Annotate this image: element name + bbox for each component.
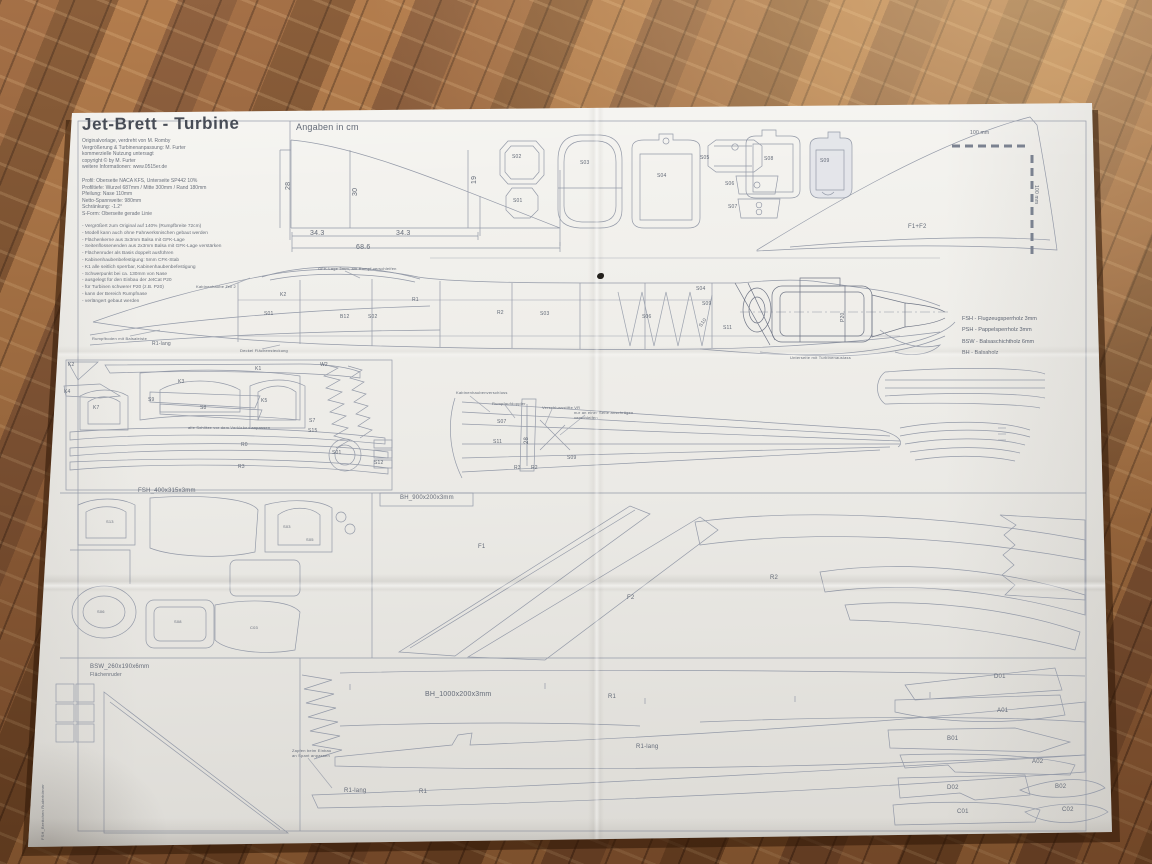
label-fus_k2: K2 xyxy=(280,292,287,298)
label-panel_bh900: BH_900x200x3mm xyxy=(400,495,454,501)
label-panel_bsw: BSW_260x190x6mm xyxy=(90,664,149,670)
label-wv_s07: S07 xyxy=(497,419,507,425)
label-lp_r3: R3 xyxy=(238,464,245,470)
label-fsh_s05: S05 xyxy=(306,537,314,542)
label-pr_d02: D02 xyxy=(947,785,959,791)
label-pr_a02: A02 xyxy=(1032,759,1043,765)
label-former_s08: S08 xyxy=(764,156,774,162)
info-line: weitere Informationen: www.0515er.de xyxy=(82,164,297,171)
label-pr_c02: C02 xyxy=(1062,807,1074,813)
label-lp_s12: S12 xyxy=(374,460,384,466)
info-line: Originalvorlage, verdreht von M. Romby xyxy=(82,138,297,145)
label-bh10_r1b: R1 xyxy=(419,789,427,795)
label-bh9_f2: F2 xyxy=(627,595,634,601)
label-former_s07: S07 xyxy=(728,204,738,210)
label-wv_s09: S09 xyxy=(567,455,577,461)
legend-line: PSH - Pappelsperrholz 3mm xyxy=(962,325,1037,336)
label-pr_d01: D01 xyxy=(994,674,1006,680)
label-bh10_note2: an Spant anpassen xyxy=(292,753,330,758)
label-fus_p20: P20 xyxy=(840,313,846,323)
label-former_s04: S04 xyxy=(657,173,667,179)
corner-shadow xyxy=(20,740,170,850)
label-lp_s9: S9 xyxy=(148,397,155,403)
label-pr_b02: B02 xyxy=(1055,784,1066,790)
horizontal-fold-crease-lower xyxy=(28,574,1112,592)
label-bh10_r1lang2: R1-lang xyxy=(344,788,366,794)
label-fus_s03: S03 xyxy=(540,311,550,317)
label-ann_gfk: GFK-Lage 3mm, am Rumpf verschleifen xyxy=(318,266,397,271)
note-line: - für Turbinen schwerer P20 (z.B. P20) xyxy=(82,285,292,292)
label-dim_28: 28 xyxy=(285,182,292,190)
label-panel_bh1000: BH_1000x200x3mm xyxy=(425,691,491,698)
label-scale_top: 100 mm xyxy=(970,130,989,136)
info-line: Profil: Oberseite NACA KFS, Unterseite S… xyxy=(82,178,297,185)
label-lp_r0: R0 xyxy=(241,442,248,448)
label-fsh_s03: S03 xyxy=(283,524,291,529)
label-wv_r2: R2 xyxy=(531,465,538,471)
info-line: copyright © by M. Furter xyxy=(82,158,297,165)
label-former_s05: S05 xyxy=(700,155,710,161)
label-dim_686: 68.6 xyxy=(356,244,370,251)
horizontal-fold-crease-upper xyxy=(28,346,1112,358)
info-line: Profiltiefe: Wurzel 687mm / Mitte 300mm … xyxy=(82,185,297,192)
label-fus_s11: S11 xyxy=(723,325,732,331)
note-line: - K1 alle seitlich sperrbar, Kabinenhaub… xyxy=(82,265,292,272)
label-angaben: Angaben in cm xyxy=(296,122,359,132)
label-fsh_c03: C03 xyxy=(250,625,258,630)
label-lp_k2: K2 xyxy=(68,362,75,368)
info-line: S-Form: Oberseite gerade Linie xyxy=(82,211,297,218)
title-block: Jet-Brett - Turbine Originalvorlage, ver… xyxy=(82,114,297,218)
label-lp_s8: S8 xyxy=(200,405,207,411)
label-lp_k1: K1 xyxy=(255,366,262,372)
info-line: Netto-Spannweite: 980mm xyxy=(82,198,297,205)
label-lp_k4: K4 xyxy=(64,389,71,395)
info-line: kommerzielle Nutzung untersagt xyxy=(82,151,297,158)
label-bh10_r1lang: R1-lang xyxy=(636,744,658,750)
label-former_s02: S02 xyxy=(512,154,522,160)
label-wv_r3: R3 xyxy=(514,465,521,471)
label-former_s01: S01 xyxy=(513,198,523,204)
plan-title: Jet-Brett - Turbine xyxy=(82,113,297,135)
note-line: - kann der Bereich Rumpfnase xyxy=(82,292,292,299)
label-lp_s01: S01 xyxy=(332,450,342,456)
title-info-lines: Originalvorlage, verdreht von M. RombyVe… xyxy=(82,138,297,171)
note-line: - Flächenruder als Basis doppelt ausführ… xyxy=(82,251,292,258)
label-scale_right: 100 mm xyxy=(1033,185,1039,204)
label-fus_s02: S02 xyxy=(368,314,378,320)
label-fus_r1: R1 xyxy=(412,297,419,303)
label-lp_k7: K7 xyxy=(93,405,100,411)
note-line: - Kabinenhaubenbefestigung: 5mm CFK-Stab xyxy=(82,258,292,265)
label-bh9_f1: F1 xyxy=(478,544,485,550)
label-lp_k3: K3 xyxy=(178,379,185,385)
build-notes: - Vergrößert zum Original auf 140% (Rump… xyxy=(82,224,292,306)
note-line: - Modell kann auch ohne Fahrwerksnischen… xyxy=(82,231,292,238)
label-wv_a2: Rumpfaufdoppler xyxy=(492,401,526,406)
legend-line: FSH - Flugzeugsperrholz 3mm xyxy=(962,314,1037,325)
label-wv_a1: Kabinenhaubenverschluss xyxy=(456,390,508,395)
info-line: Vergrößerung & Turbinenanpassung: M. Fur… xyxy=(82,145,297,152)
label-fus_s09: S09 xyxy=(702,301,712,307)
note-line: - verlängert gebaut werden xyxy=(82,299,292,306)
label-panel_bsw_sub: Flächenruder xyxy=(90,672,122,678)
label-ann_boden: Rumpfboden mit Balsaleiste xyxy=(92,336,147,341)
label-pr_a01: A01 xyxy=(997,708,1008,714)
label-pr_c01: C01 xyxy=(957,809,969,815)
vertical-fold-crease xyxy=(588,103,604,847)
label-fus_b12: B12 xyxy=(340,314,350,320)
label-lp_k5: K5 xyxy=(261,398,268,404)
label-ann_canopy: Kabinenhaube Teil 2 xyxy=(196,284,236,289)
plan-sheet: Jet-Brett - Turbine Originalvorlage, ver… xyxy=(0,0,1152,864)
label-fin: F1+F2 xyxy=(908,224,927,230)
label-wv_s11: S11 xyxy=(493,439,502,445)
label-bh10_r1: R1 xyxy=(608,694,616,700)
label-wv_28: 28 xyxy=(524,437,530,444)
label-fus_r2: R2 xyxy=(497,310,504,316)
title-spec-lines: Profil: Oberseite NACA KFS, Unterseite S… xyxy=(82,178,297,218)
label-fsh_s08: S08 xyxy=(174,619,182,624)
note-line: - Vergrößert zum Original auf 140% (Rump… xyxy=(82,224,292,231)
label-lp_w2: W2 xyxy=(320,362,328,368)
label-dim_343a: 34.3 xyxy=(310,230,324,237)
label-lp_s7: S7 xyxy=(309,418,316,424)
label-fus_s06: S06 xyxy=(642,314,652,320)
info-line: Schränkung: -1.2° xyxy=(82,204,297,211)
label-fus_s04: S04 xyxy=(696,286,706,292)
label-lp_s15: S15 xyxy=(308,428,318,434)
label-former_s06: S06 xyxy=(725,181,735,187)
label-panel_fsh: FSH_400x315x3mm xyxy=(138,488,196,494)
label-fsh_s13: S13 xyxy=(106,519,114,524)
label-fsh_s06: S06 xyxy=(97,609,105,614)
label-former_s09: S09 xyxy=(820,158,830,164)
label-dim_19: 19 xyxy=(471,176,478,184)
label-pr_b01: B01 xyxy=(947,736,958,742)
label-dim_343b: 34.3 xyxy=(396,230,410,237)
label-dim_30: 30 xyxy=(352,188,359,196)
label-fus_s01: S01 xyxy=(264,311,274,317)
info-line: Pfeilung: Nase 110mm xyxy=(82,191,297,198)
label-lp_note: alle Schlitze vor dem Verkleben anpassen xyxy=(188,425,270,430)
